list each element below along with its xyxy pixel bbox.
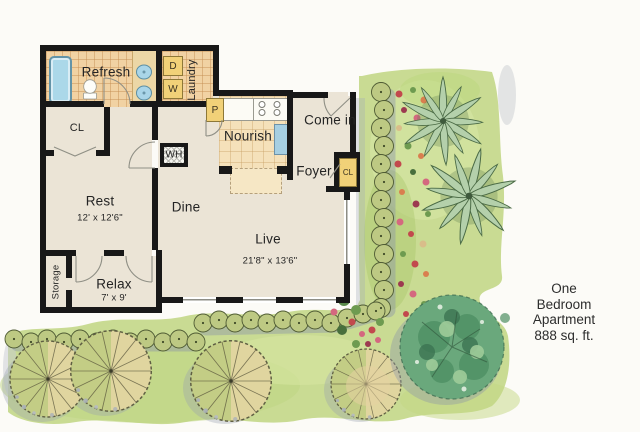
stove-burners bbox=[259, 102, 280, 116]
room-label-rest: Rest bbox=[86, 194, 115, 209]
room-dims-relax: 7' x 9' bbox=[101, 293, 127, 304]
plan-title-line2: 888 sq. ft. bbox=[526, 328, 602, 344]
bifold-closet-door bbox=[54, 147, 96, 156]
toilet bbox=[84, 93, 97, 99]
plan-title-line1: One Bedroom Apartment bbox=[526, 281, 602, 328]
room-label-nourish: Nourish bbox=[224, 129, 272, 144]
room-label-foyer: Foyer bbox=[296, 164, 332, 179]
room-label-come-in: Come in bbox=[304, 113, 356, 128]
room-dims-rest: 12' x 12'6" bbox=[77, 213, 123, 224]
room-label-water-heater: WH bbox=[165, 150, 182, 161]
door-swings bbox=[54, 78, 350, 282]
room-dims-live: 21'8" x 13'6" bbox=[243, 256, 298, 267]
room-label-laundry: Laundry bbox=[186, 59, 198, 100]
plan-title: One Bedroom Apartment 888 sq. ft. bbox=[526, 281, 602, 343]
room-label-storage: Storage bbox=[51, 265, 62, 300]
room-label-relax: Relax bbox=[96, 277, 132, 292]
room-label-live: Live bbox=[255, 232, 281, 247]
room-label-bedroom-closet: CL bbox=[70, 122, 84, 134]
floor-plan-illustration: D W P CL bbox=[0, 0, 640, 432]
room-label-refresh: Refresh bbox=[82, 65, 131, 80]
room-label-dine: Dine bbox=[172, 200, 201, 215]
